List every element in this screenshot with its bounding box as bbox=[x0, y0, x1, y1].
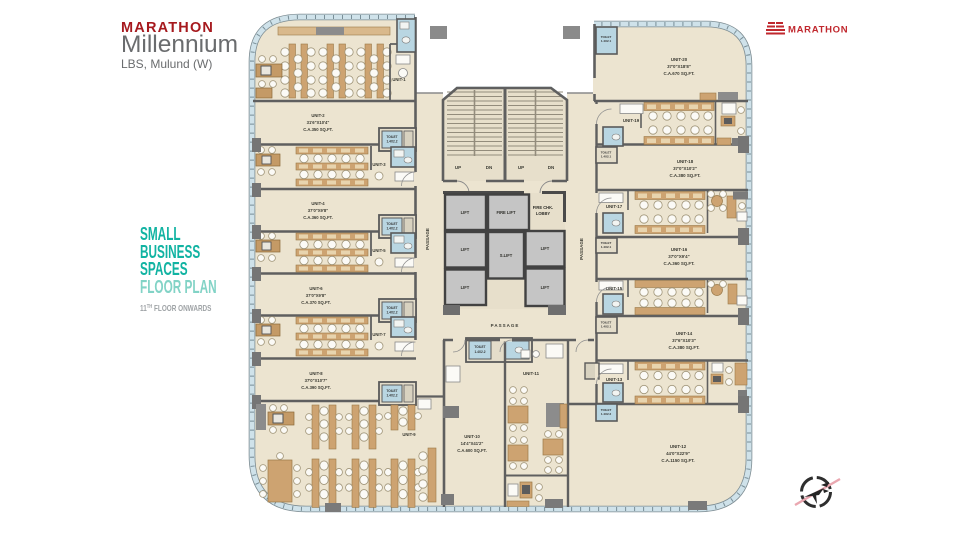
svg-text:37'0"X9'8": 37'0"X9'8" bbox=[306, 293, 326, 298]
svg-text:C.A.380 SQ.FT.: C.A.380 SQ.FT. bbox=[669, 345, 700, 350]
svg-text:UNIT-4: UNIT-4 bbox=[311, 201, 325, 206]
svg-text:UNIT-14: UNIT-14 bbox=[676, 331, 693, 336]
svg-text:UNIT-20: UNIT-20 bbox=[671, 57, 688, 62]
svg-text:C.A.380 SQ.FT.: C.A.380 SQ.FT. bbox=[670, 173, 701, 178]
svg-text:C.A.390 SQ.FT.: C.A.390 SQ.FT. bbox=[301, 385, 331, 390]
svg-text:C.A.670 SQ.FT.: C.A.670 SQ.FT. bbox=[664, 71, 695, 76]
svg-text:UNIT-11: UNIT-11 bbox=[523, 371, 540, 376]
svg-text:UNIT-16: UNIT-16 bbox=[671, 247, 688, 252]
svg-text:44'0"X22'9": 44'0"X22'9" bbox=[666, 451, 690, 456]
svg-text:C.A.370 SQ.FT.: C.A.370 SQ.FT. bbox=[301, 300, 331, 305]
svg-text:LIFT: LIFT bbox=[541, 246, 550, 251]
svg-text:PASSAGE: PASSAGE bbox=[425, 228, 430, 250]
svg-text:1.4X2.1: 1.4X2.1 bbox=[601, 39, 612, 43]
svg-text:C.A.360 SQ.FT.: C.A.360 SQ.FT. bbox=[664, 261, 695, 266]
svg-text:C.A.600 SQ.FT.: C.A.600 SQ.FT. bbox=[457, 448, 487, 453]
svg-text:UNIT-18: UNIT-18 bbox=[677, 159, 694, 164]
svg-text:FIRE LIFT: FIRE LIFT bbox=[496, 210, 516, 215]
svg-text:UNIT-10: UNIT-10 bbox=[464, 434, 480, 439]
svg-text:UNIT-9: UNIT-9 bbox=[402, 432, 416, 437]
svg-text:1.4X2.2: 1.4X2.2 bbox=[601, 412, 612, 416]
svg-text:DN: DN bbox=[486, 165, 493, 170]
svg-text:S.LIFT: S.LIFT bbox=[500, 253, 513, 258]
svg-text:UNIT-3: UNIT-3 bbox=[372, 162, 386, 167]
svg-text:14'4"X41'2": 14'4"X41'2" bbox=[461, 441, 484, 446]
svg-text:1.4X2.1: 1.4X2.1 bbox=[601, 325, 612, 329]
svg-text:1.4X2.1: 1.4X2.1 bbox=[601, 245, 612, 249]
svg-text:LIFT: LIFT bbox=[461, 285, 470, 290]
svg-text:UNIT-17: UNIT-17 bbox=[606, 204, 623, 209]
svg-text:PASSAGE: PASSAGE bbox=[579, 238, 584, 260]
svg-text:C.A.360 SQ.FT.: C.A.360 SQ.FT. bbox=[303, 215, 333, 220]
svg-text:37'0"X10'2": 37'0"X10'2" bbox=[673, 166, 697, 171]
svg-text:C.A.350 SQ.FT.: C.A.350 SQ.FT. bbox=[303, 127, 333, 132]
svg-text:37'0"X9'4": 37'0"X9'4" bbox=[668, 254, 689, 259]
svg-text:FIRE CHK.: FIRE CHK. bbox=[533, 205, 553, 210]
svg-text:UP: UP bbox=[518, 165, 524, 170]
svg-text:31'6"X10'4": 31'6"X10'4" bbox=[307, 120, 330, 125]
svg-text:C.A.1150 SQ.FT.: C.A.1150 SQ.FT. bbox=[661, 458, 694, 463]
svg-text:LIFT: LIFT bbox=[461, 247, 470, 252]
svg-text:PASSAGE: PASSAGE bbox=[491, 323, 520, 328]
svg-text:UNIT-8: UNIT-8 bbox=[309, 371, 323, 376]
svg-text:TOILET: TOILET bbox=[474, 345, 485, 349]
svg-text:LOBBY: LOBBY bbox=[536, 211, 551, 216]
svg-text:LIFT: LIFT bbox=[541, 285, 550, 290]
svg-text:LIFT: LIFT bbox=[461, 210, 470, 215]
svg-text:UNIT-2: UNIT-2 bbox=[311, 113, 325, 118]
svg-text:UNIT-13: UNIT-13 bbox=[606, 377, 623, 382]
svg-text:UNIT-15: UNIT-15 bbox=[606, 286, 623, 291]
svg-text:UNIT-12: UNIT-12 bbox=[670, 444, 687, 449]
svg-text:UNIT-1: UNIT-1 bbox=[392, 77, 406, 82]
svg-text:1.4X2.1: 1.4X2.1 bbox=[601, 155, 612, 159]
svg-text:UP: UP bbox=[455, 165, 461, 170]
svg-text:UNIT-7: UNIT-7 bbox=[372, 332, 386, 337]
svg-text:37'6"X10'3": 37'6"X10'3" bbox=[672, 338, 696, 343]
svg-text:UNIT-5: UNIT-5 bbox=[372, 248, 386, 253]
svg-text:UNIT-19: UNIT-19 bbox=[623, 118, 640, 123]
svg-text:37'0"X9'8": 37'0"X9'8" bbox=[308, 208, 328, 213]
svg-text:1.4X2.2: 1.4X2.2 bbox=[475, 350, 486, 354]
svg-text:UNIT-6: UNIT-6 bbox=[309, 286, 323, 291]
svg-text:DN: DN bbox=[548, 165, 555, 170]
svg-text:37'0"X18'8": 37'0"X18'8" bbox=[667, 64, 691, 69]
svg-text:37'0"X10'7": 37'0"X10'7" bbox=[305, 378, 328, 383]
